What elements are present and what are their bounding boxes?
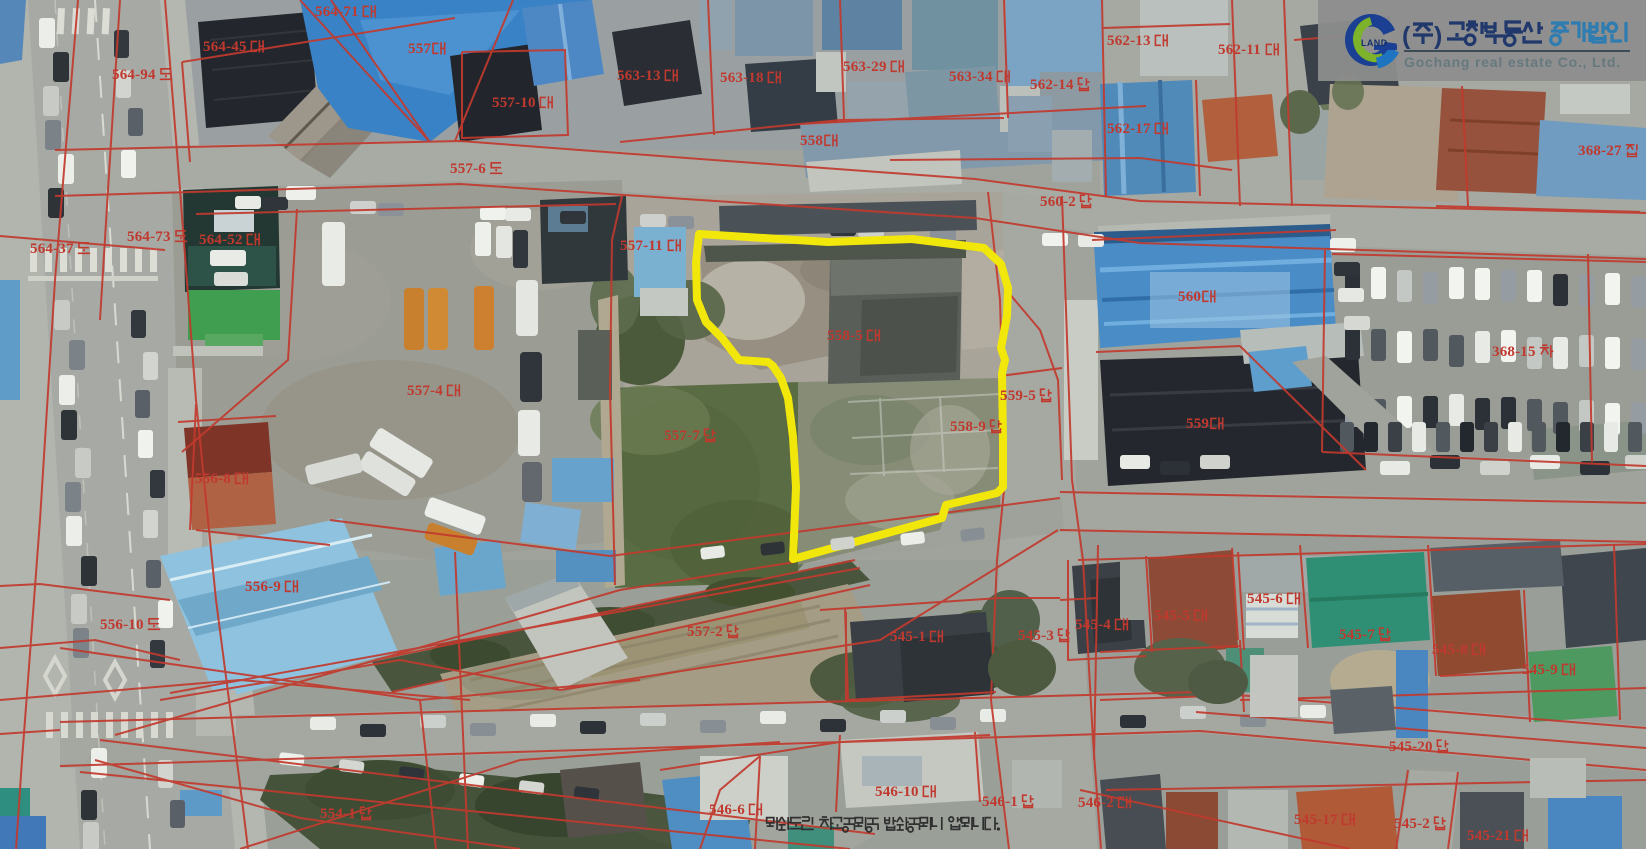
svg-text:562-11: 562-11 xyxy=(1218,42,1261,58)
svg-text:562-13: 562-13 xyxy=(1107,33,1151,49)
svg-text:557-11: 557-11 xyxy=(620,238,663,254)
svg-text:558-5: 558-5 xyxy=(827,328,863,344)
svg-text:564-37: 564-37 xyxy=(30,241,74,257)
svg-text:545-20: 545-20 xyxy=(1389,739,1433,755)
svg-text:545-5: 545-5 xyxy=(1154,608,1190,624)
svg-text:545-21: 545-21 xyxy=(1467,828,1511,844)
svg-text:559-5: 559-5 xyxy=(1000,388,1036,404)
svg-text:545-2: 545-2 xyxy=(1394,816,1430,832)
svg-text:562-17: 562-17 xyxy=(1107,121,1151,137)
svg-text:554-1: 554-1 xyxy=(320,806,356,822)
svg-text:368-15: 368-15 xyxy=(1492,344,1536,360)
svg-text:556-10: 556-10 xyxy=(100,617,144,633)
svg-text:563-18: 563-18 xyxy=(720,70,764,86)
svg-text:546-6: 546-6 xyxy=(709,802,745,818)
svg-text:545-17: 545-17 xyxy=(1294,812,1338,828)
svg-text:557-10: 557-10 xyxy=(492,95,536,111)
svg-text:557-6: 557-6 xyxy=(450,161,486,177)
svg-text:557-2: 557-2 xyxy=(687,624,723,640)
svg-text:560-2: 560-2 xyxy=(1040,194,1076,210)
svg-text:564-45: 564-45 xyxy=(203,39,247,55)
svg-text:545-4: 545-4 xyxy=(1075,617,1111,633)
svg-text:558: 558 xyxy=(800,133,823,149)
svg-text:545-3: 545-3 xyxy=(1018,628,1054,644)
svg-text:): ) xyxy=(1434,22,1442,50)
svg-text:564-73: 564-73 xyxy=(127,229,171,245)
svg-text:Gochang real estate Co., Ltd.: Gochang real estate Co., Ltd. xyxy=(1404,54,1621,70)
svg-text:556-9: 556-9 xyxy=(245,579,281,595)
svg-text:LAND: LAND xyxy=(1361,38,1388,48)
svg-text:563-34: 563-34 xyxy=(949,69,993,85)
svg-text:563-13: 563-13 xyxy=(617,68,661,84)
svg-text:545-7: 545-7 xyxy=(1339,627,1375,643)
svg-text:546-2: 546-2 xyxy=(1078,795,1114,811)
svg-text:564-52: 564-52 xyxy=(199,232,243,248)
svg-text:562-14: 562-14 xyxy=(1030,77,1074,93)
svg-text:557: 557 xyxy=(408,41,431,57)
svg-text:546-10: 546-10 xyxy=(875,784,919,800)
svg-text:556-8: 556-8 xyxy=(195,471,231,487)
svg-text:560: 560 xyxy=(1178,289,1201,305)
svg-text:563-29: 563-29 xyxy=(843,59,887,75)
svg-text:546-1: 546-1 xyxy=(982,794,1018,810)
svg-text:558-9: 558-9 xyxy=(950,419,986,435)
svg-text:557-7: 557-7 xyxy=(664,428,700,444)
svg-text:545-1: 545-1 xyxy=(890,629,926,645)
svg-text:564-94: 564-94 xyxy=(112,67,156,83)
svg-text:368-27: 368-27 xyxy=(1578,143,1622,159)
svg-text:559: 559 xyxy=(1186,416,1209,432)
svg-text:545-9: 545-9 xyxy=(1522,662,1558,678)
svg-text:545-8: 545-8 xyxy=(1432,642,1468,658)
svg-text:564-71: 564-71 xyxy=(315,4,359,20)
svg-text:545-6: 545-6 xyxy=(1247,591,1283,607)
svg-text:(: ( xyxy=(1402,22,1411,50)
svg-text:557-4: 557-4 xyxy=(407,383,443,399)
